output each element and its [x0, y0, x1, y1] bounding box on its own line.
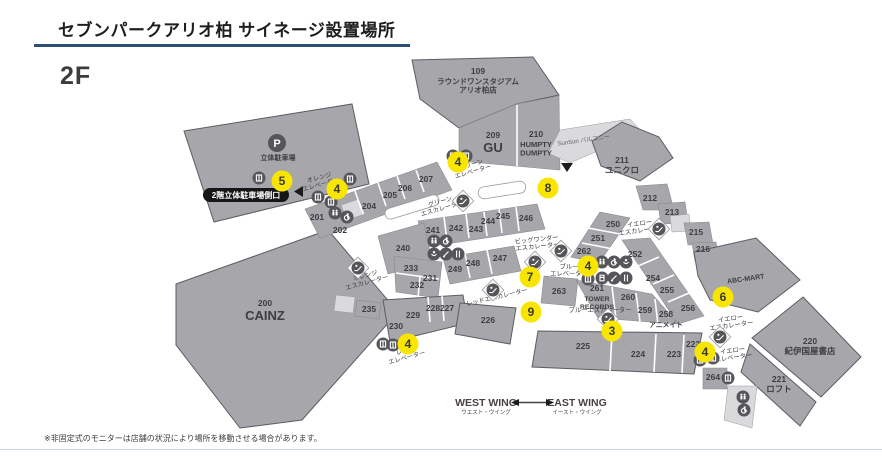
area-228: 228 [426, 303, 440, 313]
svg-text:211: 211 [615, 155, 629, 165]
svg-text:紀伊国屋書店: 紀伊国屋書店 [784, 346, 836, 356]
badge-label: 2階立体駐車場側口 [212, 190, 280, 200]
area-249: 249 [448, 264, 462, 274]
signage-marker-5-0: 5 [272, 171, 293, 192]
area-263: 263 [552, 286, 566, 296]
area-204: 204 [362, 201, 376, 211]
svg-text:264: 264 [706, 372, 720, 382]
svg-text:3: 3 [609, 324, 616, 338]
footnote: ※非固定式のモニターは店舗の状況により場所を移動させる場合があります。 [44, 433, 322, 444]
svg-text:TOWER: TOWER [584, 296, 609, 303]
svg-text:アリオ柏店: アリオ柏店 [459, 85, 497, 95]
svg-text:251: 251 [591, 233, 605, 243]
restroom-icon [329, 207, 342, 220]
area-245: 245 [496, 211, 510, 221]
area-230: 230 [389, 321, 403, 331]
svg-text:224: 224 [631, 349, 645, 359]
page: セブンパークアリオ柏 サイネージ設置場所 2F [0, 0, 882, 458]
area-223: 223 [667, 349, 681, 359]
restroom-icon [428, 235, 441, 248]
signage-marker-9-7: 9 [521, 302, 542, 323]
svg-text:227: 227 [440, 303, 454, 313]
svg-text:DUMPTY: DUMPTY [520, 149, 552, 158]
svg-text:241: 241 [426, 225, 440, 235]
svg-text:209: 209 [486, 130, 500, 140]
area-262: 262 [577, 246, 591, 256]
area-240: 240 [396, 243, 410, 253]
restroom-icon [737, 391, 750, 404]
svg-text:255: 255 [660, 285, 674, 295]
svg-text:225: 225 [576, 341, 590, 351]
area-205: 205 [383, 190, 397, 200]
svg-text:ユニクロ: ユニクロ [605, 165, 639, 175]
pen-icon [608, 272, 621, 285]
svg-text:アニメイト: アニメイト [649, 321, 683, 329]
area-231: 231 [423, 273, 437, 283]
area-251: 251 [591, 233, 605, 243]
svg-text:231: 231 [423, 273, 437, 283]
svg-text:205: 205 [383, 190, 397, 200]
area-244: 244 [481, 216, 495, 226]
svg-text:ラウンドワンスタジアム: ラウンドワンスタジアム [437, 76, 519, 86]
vending-icon [596, 272, 609, 285]
svg-text:258: 258 [659, 309, 673, 319]
area-207: 207 [419, 174, 433, 184]
area-225: 225 [576, 341, 590, 351]
svg-text:9: 9 [528, 305, 535, 319]
area-209: 209GU [483, 130, 503, 155]
svg-text:245: 245 [496, 211, 510, 221]
svg-text:207: 207 [419, 174, 433, 184]
pen-icon [440, 248, 453, 261]
svg-text:246: 246 [519, 213, 533, 223]
svg-text:212: 212 [643, 193, 657, 203]
svg-text:248: 248 [466, 258, 480, 268]
svg-text:260: 260 [621, 292, 635, 302]
area-202: 202 [333, 225, 347, 235]
svg-text:7: 7 [527, 270, 534, 284]
bottom-divider [0, 449, 882, 450]
svg-text:8: 8 [545, 181, 552, 195]
planter [477, 180, 526, 199]
area-201: 201 [310, 212, 324, 222]
svg-text:ブルー: ブルー [560, 262, 579, 271]
svg-text:109: 109 [471, 66, 485, 76]
svg-text:233: 233 [404, 263, 418, 273]
svg-text:226: 226 [481, 315, 495, 325]
area-229: 229 [406, 310, 420, 320]
svg-text:259: 259 [638, 305, 652, 315]
area-255: 255 [660, 285, 674, 295]
svg-text:201: 201 [310, 212, 324, 222]
signage-marker-4-10: 4 [695, 342, 716, 363]
area-248: 248 [466, 258, 480, 268]
svg-text:242: 242 [449, 223, 463, 233]
area-264: 264 [706, 372, 720, 382]
area-226: 226 [481, 315, 495, 325]
svg-text:4: 4 [405, 337, 412, 351]
block-light-235 [334, 295, 355, 313]
wheelchair-icon [738, 404, 751, 417]
svg-text:216: 216 [696, 244, 710, 254]
elevator-icon [253, 172, 266, 185]
svg-text:4: 4 [585, 259, 592, 273]
area-242: 242 [449, 223, 463, 233]
signage-marker-4-9: 4 [398, 334, 419, 355]
svg-text:213: 213 [665, 207, 679, 217]
area-224: 224 [631, 349, 645, 359]
parking-entrance-badge: 2階立体駐車場側口 [203, 188, 289, 202]
facility-yellow-escalator-lower: イエローエスカレーター [708, 312, 754, 332]
signage-marker-8-3: 8 [538, 178, 559, 199]
svg-text:5: 5 [279, 174, 286, 188]
svg-text:244: 244 [481, 216, 495, 226]
svg-text:249: 249 [448, 264, 462, 274]
area-250: 250 [606, 219, 620, 229]
floor-map: P 立体駐車場 2階立体駐車場側口 SunSun バルコニー ABC-MART … [0, 0, 882, 458]
svg-text:206: 206 [398, 183, 412, 193]
food-icon [620, 272, 633, 285]
svg-text:6: 6 [720, 290, 727, 304]
area-246: 246 [519, 213, 533, 223]
east-wing-label-jp: イースト・ウイング [552, 408, 602, 416]
svg-text:220: 220 [803, 336, 817, 346]
svg-text:262: 262 [577, 246, 591, 256]
signage-marker-6-6: 6 [713, 287, 734, 308]
area-212: 212 [643, 193, 657, 203]
svg-text:247: 247 [493, 253, 507, 263]
area-213: 213 [665, 207, 679, 217]
svg-text:232: 232 [410, 280, 424, 290]
west-wing-label: WEST WING [455, 397, 517, 409]
block-cainz [176, 230, 398, 428]
svg-text:250: 250 [606, 219, 620, 229]
elevator-icon [312, 191, 325, 204]
parking-icon-letter: P [273, 138, 280, 150]
area-227: 227 [440, 303, 454, 313]
svg-text:210: 210 [529, 129, 543, 139]
wing-legend: WEST WING ウエスト・ウイング EAST WING イースト・ウイング [455, 397, 607, 416]
area-233: 233 [404, 263, 418, 273]
wheelchair-icon [440, 235, 453, 248]
signage-marker-4-4: 4 [578, 256, 599, 277]
svg-text:221: 221 [772, 374, 786, 384]
svg-text:228: 228 [426, 303, 440, 313]
baby-icon [428, 248, 441, 261]
signage-marker-3-8: 3 [602, 321, 623, 342]
area-247: 247 [493, 253, 507, 263]
svg-text:263: 263 [552, 286, 566, 296]
svg-text:CAINZ: CAINZ [245, 308, 285, 323]
svg-text:4: 4 [455, 155, 462, 169]
facility-blue-escalator: ブルーエスカレーター [569, 305, 632, 314]
food-icon [452, 248, 465, 261]
area-206: 206 [398, 183, 412, 193]
svg-text:204: 204 [362, 201, 376, 211]
svg-text:GU: GU [483, 140, 503, 155]
svg-text:4: 4 [702, 345, 709, 359]
svg-text:4: 4 [334, 182, 341, 196]
svg-text:230: 230 [389, 321, 403, 331]
area-256: 256 [681, 303, 695, 313]
svg-text:261: 261 [590, 283, 604, 293]
area-235: 235 [362, 304, 376, 314]
svg-text:223: 223 [667, 349, 681, 359]
parking-label: 立体駐車場 [261, 153, 296, 162]
west-wing-label-jp: ウエスト・ウイング [461, 408, 511, 416]
area-232: 232 [410, 280, 424, 290]
east-wing-label: EAST WING [547, 397, 607, 409]
area-216: 216 [696, 244, 710, 254]
area-259: 259 [638, 305, 652, 315]
area-254: 254 [646, 273, 660, 283]
elevator-icon [722, 372, 735, 385]
svg-text:254: 254 [646, 273, 660, 283]
svg-text:240: 240 [396, 243, 410, 253]
signage-marker-7-5: 7 [520, 267, 541, 288]
svg-text:ブルーエスカレーター: ブルーエスカレーター [569, 305, 632, 314]
baby-icon [620, 256, 633, 269]
wheelchair-icon [341, 211, 354, 224]
arrow-down-icon [561, 163, 573, 172]
svg-text:256: 256 [681, 303, 695, 313]
area-241: 241 [426, 225, 440, 235]
signage-marker-4-2: 4 [448, 152, 469, 173]
svg-text:ロフト: ロフト [766, 384, 792, 394]
svg-text:235: 235 [362, 304, 376, 314]
svg-text:215: 215 [689, 227, 703, 237]
wheelchair-icon [608, 256, 621, 269]
area-260: 260 [621, 292, 635, 302]
svg-text:200: 200 [258, 298, 272, 308]
svg-text:202: 202 [333, 225, 347, 235]
area-215: 215 [689, 227, 703, 237]
svg-text:229: 229 [406, 310, 420, 320]
signage-marker-4-1: 4 [327, 179, 348, 200]
